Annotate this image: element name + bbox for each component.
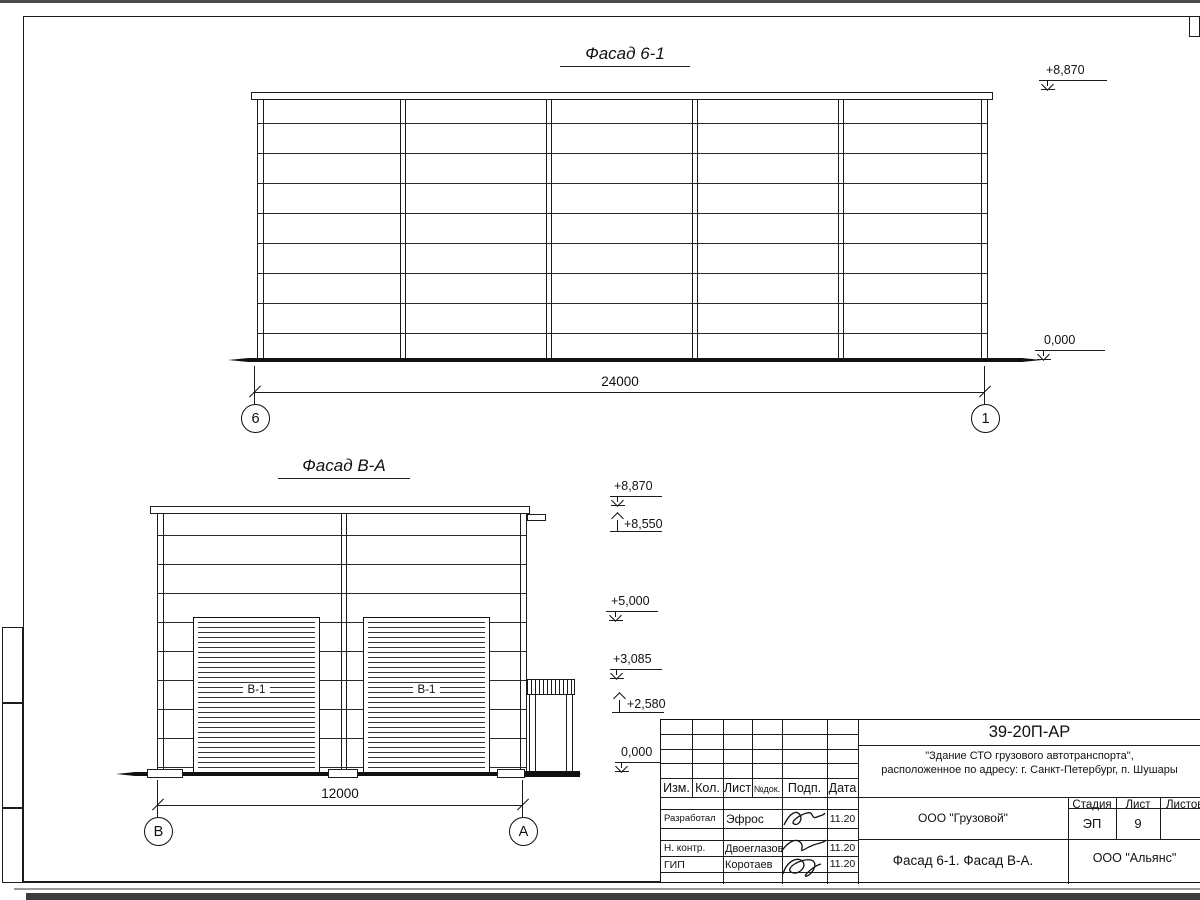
facade1-body — [257, 99, 988, 360]
tb-role-ncontrol: Н. контр. — [664, 843, 724, 854]
tb-col-podp: Подп. — [782, 781, 827, 795]
tb-row-line — [661, 734, 858, 735]
facade1-ext-line-right — [984, 366, 985, 406]
gate-left: В-1 — [193, 617, 320, 775]
facade2-level-8550-stem — [617, 520, 618, 531]
drawing-sheet: Фасад 6-1 +8,870 0,000 24000 6 1 Фасад В… — [0, 0, 1200, 900]
tb-col-data: Дата — [827, 781, 858, 795]
tb-company: ООО "Альянс" — [1068, 851, 1200, 865]
sheet-bottom-edge — [26, 893, 1200, 900]
tb-project-line2: расположенное по адресу: г. Санкт-Петерб… — [858, 764, 1200, 776]
frame-left — [23, 16, 24, 883]
tb-doc-number: 39-20П-АР — [858, 723, 1200, 742]
facade2-ext-line-right — [522, 780, 523, 818]
porch-post-left — [529, 694, 536, 773]
facade2-center-mullion — [341, 514, 347, 774]
facade2-level-5000-tick — [609, 620, 623, 621]
tb-row-line — [661, 809, 858, 810]
facade2-axis-bubble-v: В — [144, 817, 173, 846]
tb-col-izm: Изм. — [661, 781, 692, 795]
facade1-title: Фасад 6-1 — [560, 44, 690, 67]
tb-date-gip: 11.20 — [827, 858, 858, 870]
porch-post-right — [566, 694, 573, 773]
canopy-band — [526, 679, 575, 695]
facade1-dim-value: 24000 — [570, 374, 670, 389]
facade2-level-5000-value: +5,000 — [611, 594, 650, 608]
facade2-right-edge-line — [520, 514, 521, 774]
tb-name-gip: Коротаев — [725, 859, 783, 871]
tb-stage-value: ЭП — [1068, 816, 1116, 831]
tb-sheet-label: Лист — [1116, 799, 1160, 811]
tb-name-developer: Эфрос — [726, 812, 782, 826]
facade1-panel-lines — [258, 123, 987, 359]
facade1-ext-line-left — [254, 366, 255, 406]
gate-right: В-1 — [363, 617, 490, 775]
footing-pad-left — [147, 769, 183, 778]
facade2-dim-line — [158, 805, 523, 806]
facade2-level-8870-value: +8,870 — [614, 479, 653, 493]
margin-box-2 — [2, 703, 23, 808]
facade2-level-zero-value: 0,000 — [621, 745, 652, 759]
facade2-level-2580-stem — [619, 700, 620, 712]
gate-right-shutter — [368, 622, 485, 774]
facade2-level-2580-value: +2,580 — [627, 697, 666, 711]
tb-stage-label: Стадия — [1068, 799, 1116, 811]
facade1-left-edge-line — [263, 100, 264, 359]
facade1-level-zero-tick — [1037, 359, 1051, 360]
facade1-right-edge-line — [981, 100, 982, 359]
tb-col-list: Лист — [723, 781, 752, 795]
tb-date-developer: 11.20 — [827, 813, 858, 825]
gate-right-label: В-1 — [413, 684, 441, 696]
facade2-level-zero-tick — [615, 771, 629, 772]
frame-top — [23, 16, 1200, 17]
tb-org: ООО "Грузовой" — [858, 811, 1068, 825]
tb-col-ndok: №док. — [752, 784, 782, 794]
facade1-axis-bubble-1: 1 — [971, 404, 1000, 433]
tb-sheet-title: Фасад 6-1. Фасад В-А. — [858, 853, 1068, 868]
tb-row-line — [661, 778, 858, 779]
tb-row-line — [661, 763, 858, 764]
facade2-level-3085-value: +3,085 — [613, 652, 652, 666]
tb-name-ncontrol: Двоеглазов — [725, 843, 783, 855]
facade2-level-3085-tick — [610, 678, 624, 679]
tb-project-line1: "Здание СТО грузового автотранспорта", — [858, 750, 1200, 762]
signature-developer — [781, 807, 827, 829]
facade2-level-8550-line — [610, 531, 662, 532]
facade1-level-top-tick — [1041, 89, 1055, 90]
facade2-level-2580-line — [612, 712, 664, 713]
tb-role-developer: Разработал — [664, 813, 724, 824]
facade2-level-8870-tick — [611, 505, 625, 506]
signature-ncontrol-gip — [777, 836, 829, 880]
facade2-roof-pipe — [527, 514, 546, 521]
title-block: Изм. Кол. Лист №док. Подп. Дата Разработ… — [660, 719, 1200, 883]
sheet-bottom-shadow — [14, 888, 1200, 890]
tb-row-line — [858, 745, 1200, 746]
facade2-ext-line-left — [157, 780, 158, 818]
facade2-left-edge-line — [163, 514, 164, 774]
gate-left-shutter — [198, 622, 315, 774]
facade2-title: Фасад В-А — [278, 456, 410, 479]
facade1-dim-line — [255, 392, 985, 393]
sheet-top-edge — [0, 0, 1200, 3]
tb-sheets-label: Листов — [1160, 799, 1200, 811]
tb-row-line — [661, 797, 1200, 798]
tb-col-kol: Кол. — [692, 781, 723, 795]
margin-box-1 — [2, 627, 23, 703]
tb-date-ncontrol: 11.20 — [827, 842, 858, 854]
facade1-mullion-2 — [546, 100, 552, 359]
footing-pad-right — [497, 769, 525, 778]
tb-row-line — [661, 828, 858, 829]
facade1-mullion-4 — [838, 100, 844, 359]
gate-left-label: В-1 — [243, 684, 271, 696]
tb-row-line — [661, 749, 858, 750]
facade1-mullion-3 — [692, 100, 698, 359]
frame-corner-box — [1189, 16, 1200, 37]
tb-sheet-value: 9 — [1116, 816, 1160, 831]
facade1-axis-bubble-6: 6 — [241, 404, 270, 433]
facade1-level-top-value: +8,870 — [1046, 63, 1085, 77]
margin-box-3 — [2, 808, 23, 883]
facade2-level-8550-value: +8,550 — [624, 517, 663, 531]
tb-role-gip: ГИП — [664, 859, 724, 871]
facade2-dim-value: 12000 — [290, 786, 390, 801]
facade1-mullion-1 — [400, 100, 406, 359]
facade2-axis-bubble-a: А — [509, 817, 538, 846]
facade1-level-zero-value: 0,000 — [1044, 333, 1075, 347]
tb-row-line — [858, 839, 1200, 840]
facade1-ground-line — [228, 358, 1042, 362]
footing-pad-center — [328, 769, 358, 778]
